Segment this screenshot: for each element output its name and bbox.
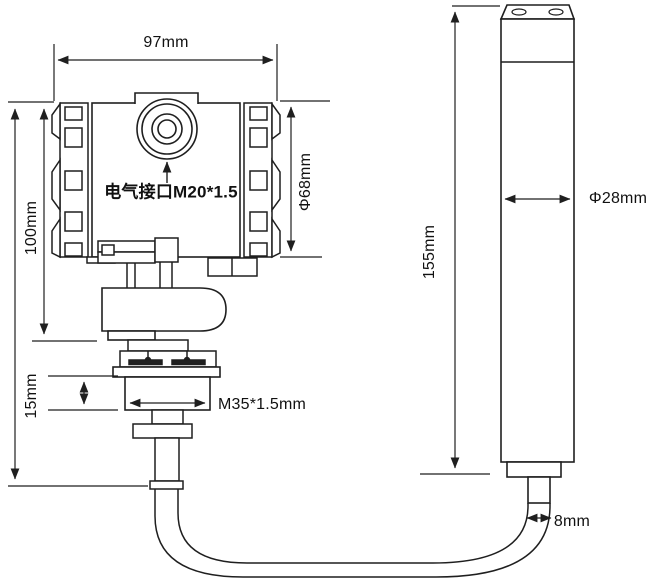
label-body-height: 100mm <box>23 201 41 255</box>
bracket-clamp <box>155 238 178 262</box>
tube-collar <box>133 424 192 438</box>
label-thread-spec: M35*1.5mm <box>218 396 306 414</box>
transmitter-head <box>92 93 240 257</box>
label-cable-diameter: 8mm <box>554 513 590 531</box>
probe-vent-hole-left <box>512 9 526 15</box>
label-electrical-port: 电气接口M20*1.5 <box>104 178 238 203</box>
collar-neck <box>128 340 188 351</box>
right-fin-cap <box>244 103 280 257</box>
tube-tip <box>150 481 183 489</box>
probe-body <box>501 5 574 503</box>
insertion-tube <box>133 410 192 489</box>
seal-gasket-left <box>129 360 162 365</box>
label-thread-length: 15mm <box>23 373 41 418</box>
dimension-diagram: 97mm 100mm 电气接口M20*1.5 Φ68mm 15mm M35*1.… <box>0 0 650 584</box>
probe-cylinder <box>501 19 574 462</box>
label-probe-diameter: Φ28mm <box>589 190 647 208</box>
label-body-width: 97mm <box>143 34 188 52</box>
label-housing-diameter: Φ68mm <box>297 153 315 211</box>
probe-vent-hole-right <box>549 9 563 15</box>
electrical-entry-inner-circle <box>158 120 176 138</box>
tube-shaft <box>155 438 179 481</box>
bottom-step-plate <box>108 331 155 340</box>
thread-block <box>125 377 210 410</box>
probe-bottom-collar <box>507 462 561 477</box>
seal-collar <box>120 340 216 367</box>
dim-15mm <box>48 376 118 410</box>
label-probe-length: 155mm <box>421 225 439 279</box>
tube-neck <box>152 410 183 424</box>
left-fin-cap <box>52 103 88 257</box>
flange-plate <box>113 367 220 377</box>
seal-gasket-right <box>172 360 205 365</box>
cable <box>155 489 550 577</box>
diagram-linework <box>0 0 650 584</box>
probe-cable-fitting <box>528 477 550 503</box>
process-connection-body <box>102 288 226 340</box>
